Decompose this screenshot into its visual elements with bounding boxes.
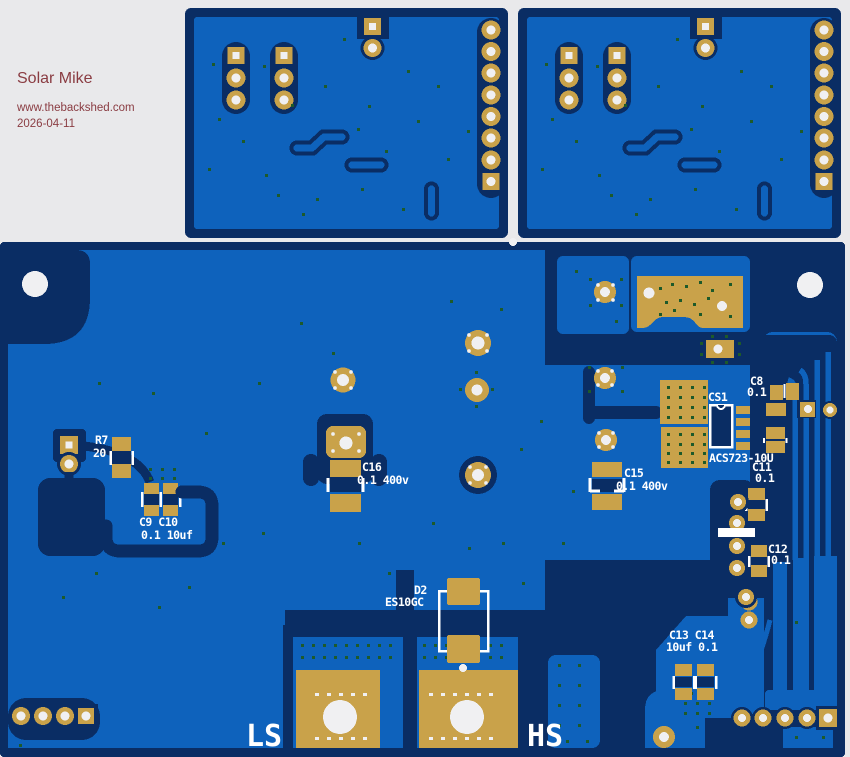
label-hs-terminal: HS [527, 722, 563, 752]
label-r7-value: 20 [93, 447, 106, 459]
label-c8-value: 0.1 [747, 386, 766, 398]
label-d2-value: ES10GC [385, 596, 424, 608]
author-name: Solar Mike [17, 70, 135, 88]
label-c16-ref: C16 [362, 461, 381, 473]
title-block: Solar Mike www.thebackshed.com 2026-04-1… [17, 70, 135, 134]
date-label: 2026-04-11 [17, 118, 135, 130]
pcb-render: Solar Mike www.thebackshed.com 2026-04-1… [0, 0, 850, 757]
label-r7-ref: R7 [95, 434, 108, 446]
mounting-hole-top-left [8, 250, 90, 344]
hs-terminal-pad [419, 670, 518, 748]
label-c11-value: 0.1 [755, 472, 774, 484]
terminal-block [283, 610, 548, 748]
label-c15-ref: C15 [624, 467, 643, 479]
ls-terminal-pad [296, 670, 380, 748]
label-cs1-ref: CS1 [708, 391, 727, 403]
website-url: www.thebackshed.com [17, 102, 135, 114]
label-c15-value: 0.1 400v [616, 480, 667, 492]
label-c13c14-vals: 10uf 0.1 [666, 641, 717, 653]
label-c12-value: 0.1 [771, 554, 790, 566]
bottom-right-connector [731, 706, 840, 730]
main-board [0, 238, 845, 757]
label-c9c10-vals: 0.1 10uf [141, 529, 192, 541]
label-ls-terminal: LS [246, 722, 282, 752]
mounting-hole-top-right [797, 272, 823, 298]
label-c9c10-refs: C9 C10 [139, 516, 178, 528]
label-c16-value: 0.1 400v [357, 474, 408, 486]
top-board-left [185, 8, 508, 238]
top-board-right [518, 8, 841, 238]
silkscreen-bar [718, 528, 755, 537]
